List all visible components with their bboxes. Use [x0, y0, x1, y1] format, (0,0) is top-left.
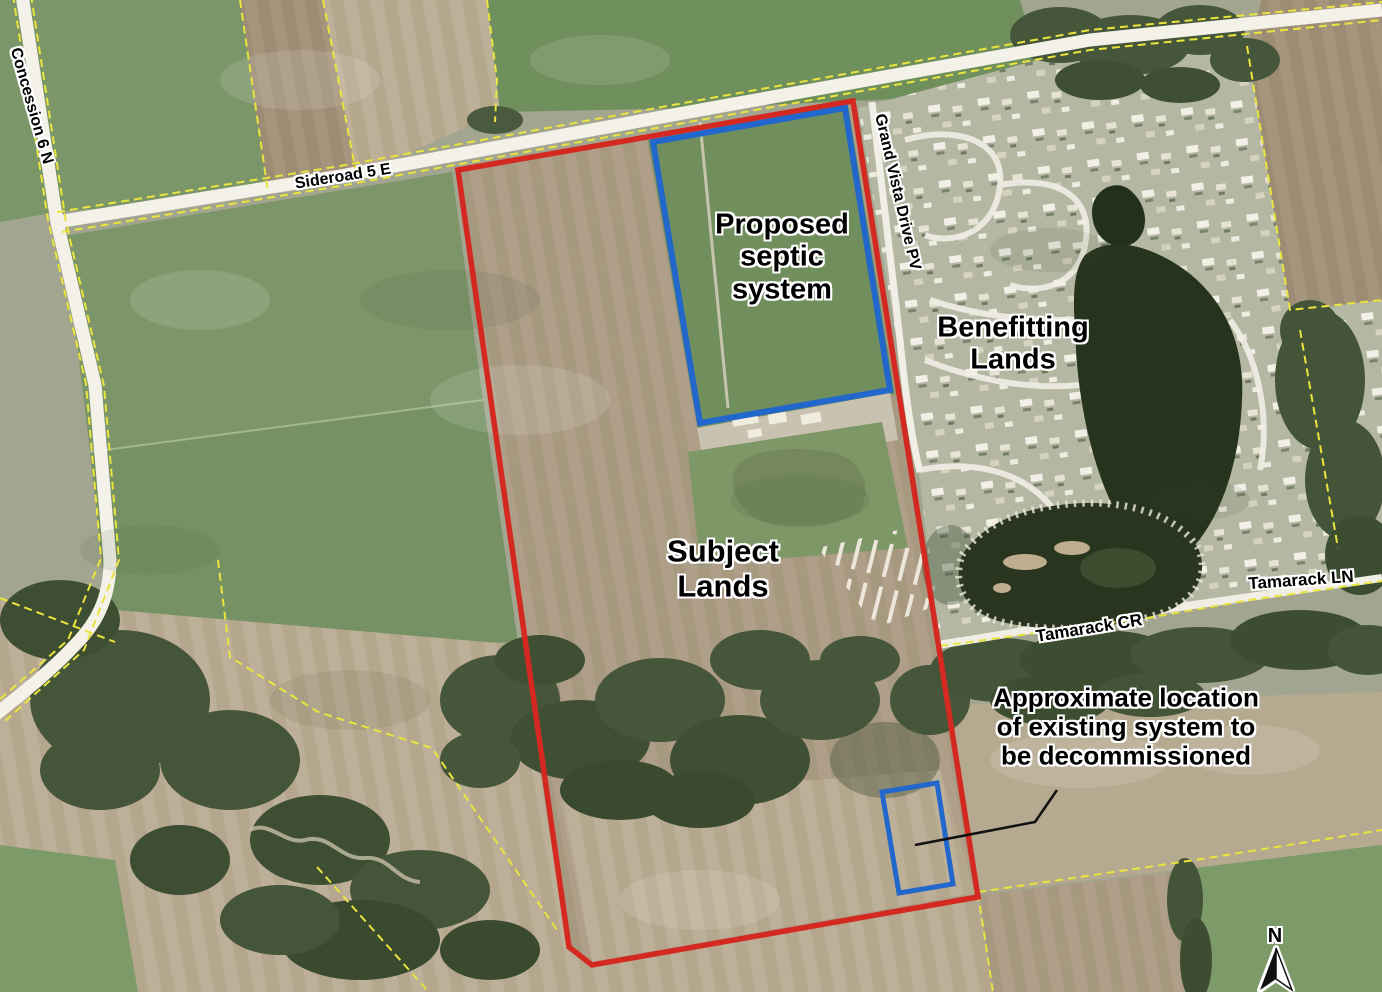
label-line: Lands: [937, 344, 1088, 376]
aerial-basemap: [0, 0, 1382, 992]
label-line: Proposed: [715, 208, 849, 240]
label-line: system: [715, 273, 849, 305]
label-decommission-note: Approximate location of existing system …: [993, 683, 1259, 770]
label-subject-lands: Subject Lands: [667, 534, 779, 603]
north-arrow-label: N: [1268, 925, 1282, 947]
label-line: Approximate location: [993, 683, 1259, 712]
label-line: septic: [715, 241, 849, 273]
label-benefitting-lands: Benefitting Lands: [937, 312, 1088, 377]
aerial-map: Proposed septic system Benefitting Lands…: [0, 0, 1382, 992]
field-southeast-green: [1195, 845, 1382, 992]
label-line: be decommissioned: [993, 742, 1259, 771]
label-line: Benefitting: [937, 312, 1088, 344]
label-line: Lands: [667, 569, 779, 604]
label-proposed-septic: Proposed septic system: [715, 208, 849, 305]
label-line: Subject: [667, 534, 779, 569]
label-line: of existing system to: [993, 712, 1259, 741]
